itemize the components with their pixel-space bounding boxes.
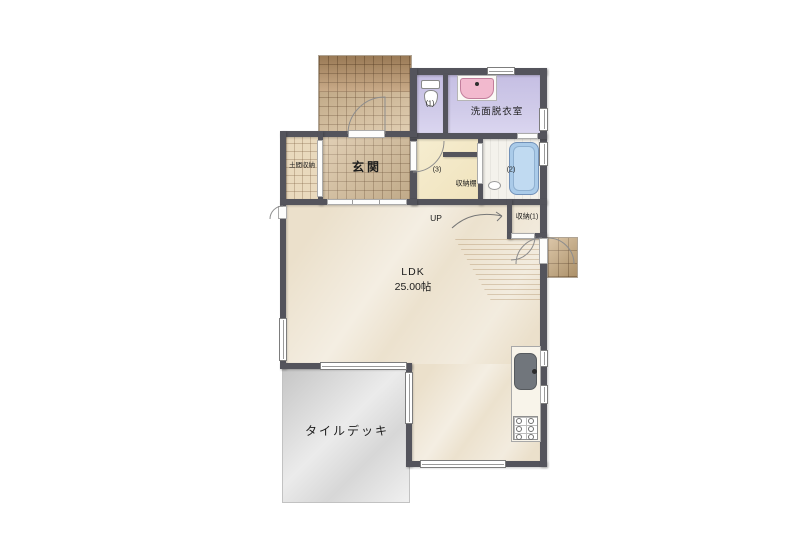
stove-burner [528, 418, 534, 424]
wall-top-sanitary [410, 68, 547, 75]
window-bath-right [539, 142, 548, 166]
stove-burner [516, 426, 522, 432]
label-genkan: 玄関 [352, 161, 382, 173]
kitchen-faucet [532, 369, 537, 374]
label-closet1: 収納(1) [516, 214, 539, 221]
back-door-porch [547, 237, 578, 278]
room-hall-floor [416, 139, 479, 200]
label-bath-number: (2) [507, 167, 516, 174]
closet1-door-opening [511, 233, 535, 239]
label-ldk-area: 25.00帖 [395, 282, 432, 293]
washroom-bath-opening [517, 133, 538, 139]
toilet-tank [421, 80, 440, 89]
stove-burner [528, 426, 534, 432]
stove-burner [516, 418, 522, 424]
entrance-porch [318, 55, 412, 133]
bath-folding-door [477, 143, 483, 184]
wall-hallrow-bottom [410, 199, 547, 205]
bath-faucet-stand [488, 181, 501, 190]
washbasin-faucet [475, 82, 479, 86]
wall-toilet-washroom [443, 74, 448, 134]
porch-upper-tiles [319, 56, 411, 92]
label-tile-deck: タイルデッキ [305, 425, 389, 437]
back-door-leaf [539, 238, 548, 264]
label-doma-storage: 土間収納 [289, 163, 315, 170]
bathtub-inner [513, 146, 535, 191]
window-deck-right [405, 372, 413, 424]
porch-lower-tiles [319, 92, 411, 134]
front-door-opening [348, 130, 385, 138]
doma-sliding-door [317, 140, 323, 197]
window-washroom-right [539, 108, 548, 131]
kitchen-stove [513, 416, 538, 440]
stove-burner [516, 434, 522, 440]
window-washroom-top [487, 67, 515, 75]
label-hall-number: (3) [433, 167, 442, 174]
label-shelf: 収納棚 [456, 181, 477, 188]
side-door-leaf [278, 206, 287, 219]
label-toilet-number: (1) [426, 101, 435, 108]
window-deck-slider [320, 362, 407, 370]
label-washroom: 洗面脱衣室 [471, 107, 524, 117]
stove-burner [528, 434, 534, 440]
window-ldk-bottom [420, 460, 506, 468]
floor-plan: 土間収納 玄関 (1) 洗面脱衣室 (3) 収納棚 (2) UP 収納(1) L… [0, 0, 800, 535]
label-stairs-up: UP [430, 214, 442, 223]
wall-shelf-stub [443, 152, 478, 157]
wall-left-outer-entrance [280, 131, 286, 205]
label-ldk: LDK [401, 267, 424, 278]
hall-door-opening [410, 141, 417, 171]
window-ldk-left [279, 318, 287, 361]
genkan-step-opening [327, 199, 407, 205]
